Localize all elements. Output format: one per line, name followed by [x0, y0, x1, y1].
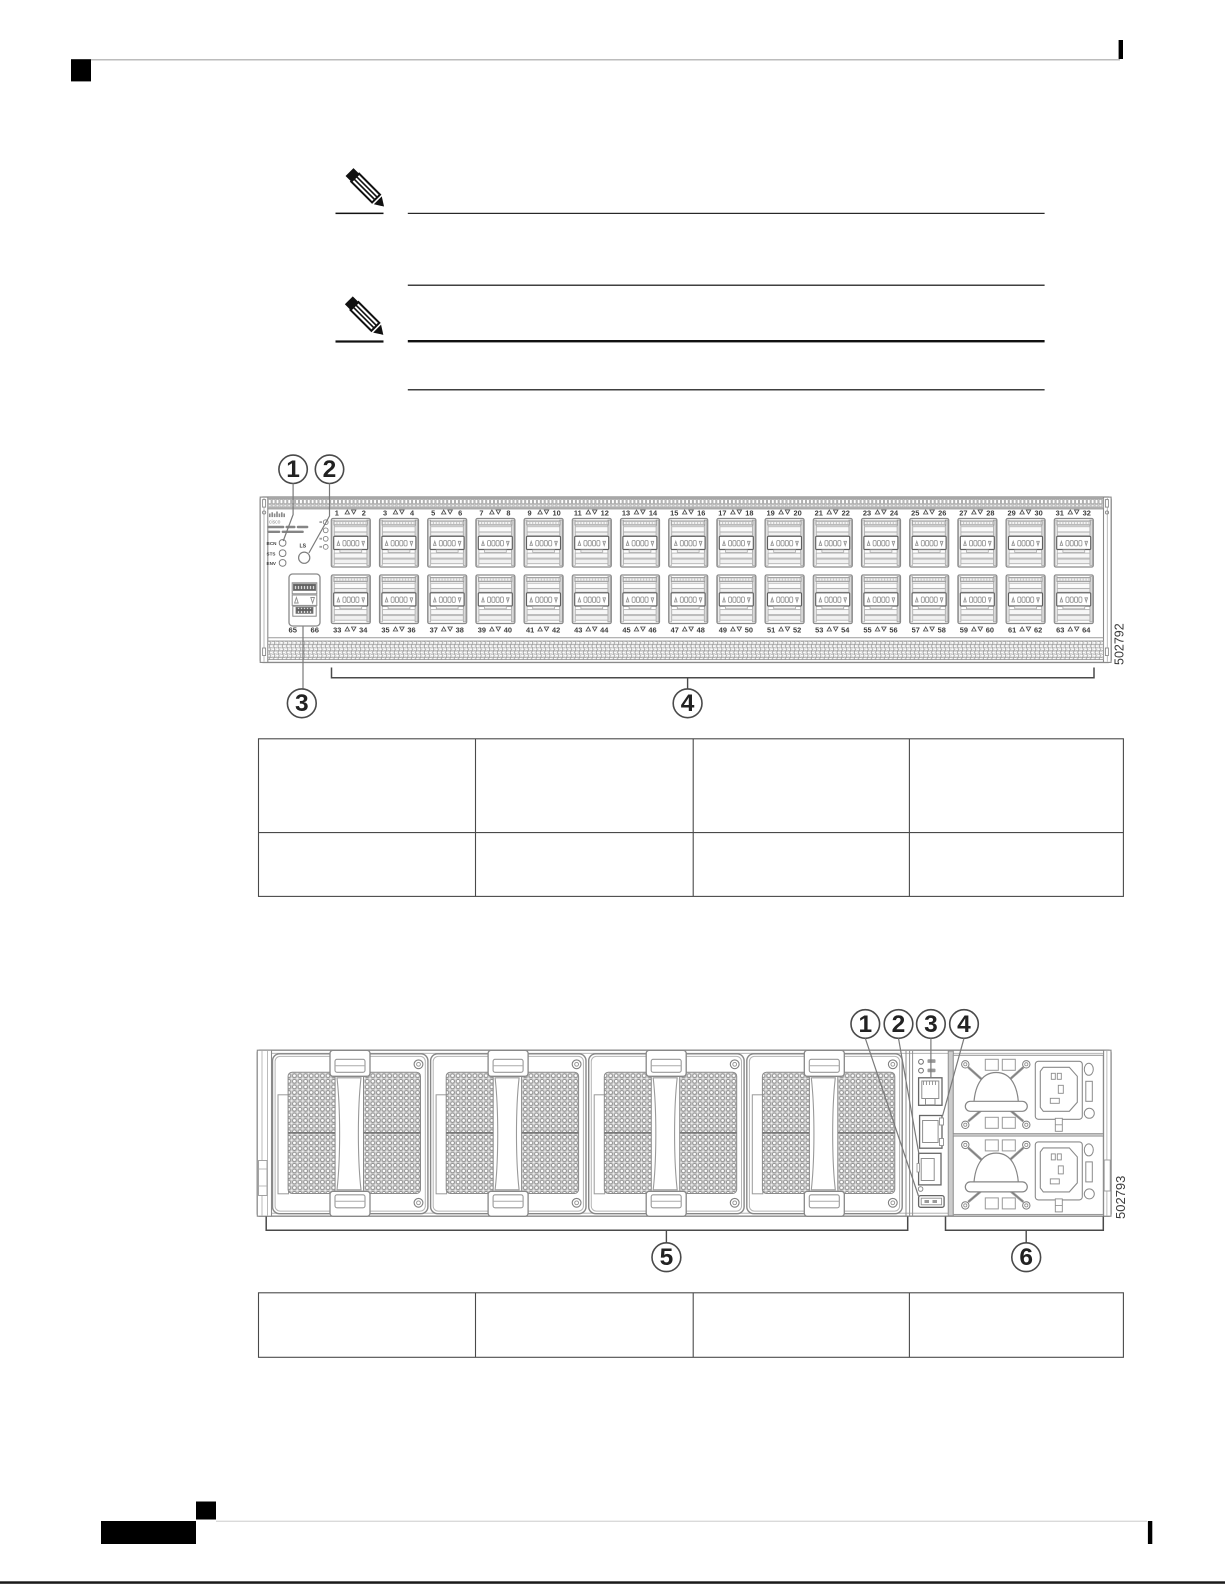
svg-text:48: 48 — [697, 626, 705, 635]
svg-text:53: 53 — [815, 626, 823, 635]
svg-text:15: 15 — [670, 508, 678, 517]
svg-text:4: 4 — [681, 690, 695, 717]
svg-text:37: 37 — [430, 626, 438, 635]
svg-text:20: 20 — [793, 508, 801, 517]
svg-text:41: 41 — [526, 626, 534, 635]
svg-text:LS: LS — [300, 544, 307, 550]
svg-text:25: 25 — [911, 508, 919, 517]
svg-text:2: 2 — [362, 508, 366, 517]
svg-text:27: 27 — [959, 508, 967, 517]
svg-text:cisco: cisco — [269, 519, 281, 525]
svg-text:65: 65 — [289, 626, 298, 635]
svg-text:14: 14 — [649, 508, 658, 517]
svg-text:8: 8 — [506, 508, 510, 517]
svg-text:19: 19 — [766, 508, 774, 517]
svg-text:59: 59 — [960, 626, 968, 635]
svg-text:7: 7 — [479, 508, 483, 517]
svg-text:16: 16 — [697, 508, 705, 517]
svg-text:44: 44 — [600, 626, 609, 635]
svg-text:BCN: BCN — [267, 541, 278, 546]
svg-text:1: 1 — [335, 508, 339, 517]
svg-text:42: 42 — [552, 626, 560, 635]
svg-text:63: 63 — [1056, 626, 1064, 635]
svg-text:54: 54 — [841, 626, 850, 635]
svg-text:55: 55 — [863, 626, 871, 635]
svg-text:56: 56 — [889, 626, 897, 635]
svg-text:57: 57 — [912, 626, 920, 635]
svg-text:30: 30 — [1034, 508, 1042, 517]
svg-text:1: 1 — [286, 456, 300, 483]
svg-text:6: 6 — [1019, 1244, 1033, 1271]
svg-text:2: 2 — [892, 1011, 906, 1038]
svg-text:10: 10 — [552, 508, 560, 517]
svg-text:39: 39 — [478, 626, 486, 635]
svg-text:34: 34 — [359, 626, 368, 635]
svg-text:45: 45 — [622, 626, 630, 635]
svg-text:3: 3 — [924, 1011, 938, 1038]
svg-text:1: 1 — [858, 1011, 872, 1038]
svg-text:502793: 502793 — [1113, 1176, 1128, 1219]
svg-text:60: 60 — [986, 626, 994, 635]
svg-text:3: 3 — [295, 690, 309, 717]
svg-text:502792: 502792 — [1113, 623, 1127, 665]
svg-text:STS: STS — [267, 552, 276, 557]
svg-text:35: 35 — [381, 626, 389, 635]
svg-text:22: 22 — [842, 508, 850, 517]
svg-text:51: 51 — [767, 626, 775, 635]
svg-text:5: 5 — [660, 1244, 674, 1271]
svg-text:18: 18 — [745, 508, 753, 517]
svg-text:61: 61 — [1008, 626, 1016, 635]
svg-text:29: 29 — [1007, 508, 1015, 517]
svg-text:24: 24 — [890, 508, 899, 517]
svg-text:26: 26 — [938, 508, 946, 517]
svg-text:31: 31 — [1056, 508, 1064, 517]
svg-text:4: 4 — [957, 1011, 971, 1038]
svg-text:23: 23 — [863, 508, 871, 517]
svg-text:46: 46 — [648, 626, 656, 635]
svg-text:33: 33 — [333, 626, 341, 635]
svg-text:49: 49 — [719, 626, 727, 635]
svg-text:47: 47 — [671, 626, 679, 635]
svg-text:32: 32 — [1083, 508, 1091, 517]
svg-text:21: 21 — [815, 508, 823, 517]
svg-text:38: 38 — [456, 626, 464, 635]
svg-text:43: 43 — [574, 626, 582, 635]
svg-text:13: 13 — [622, 508, 630, 517]
svg-text:17: 17 — [718, 508, 726, 517]
svg-text:5: 5 — [431, 508, 435, 517]
svg-text:40: 40 — [504, 626, 512, 635]
svg-text:28: 28 — [986, 508, 994, 517]
svg-text:64: 64 — [1082, 626, 1091, 635]
svg-text:11: 11 — [574, 508, 582, 517]
svg-text:66: 66 — [311, 626, 319, 635]
svg-text:3: 3 — [383, 508, 387, 517]
svg-text:2: 2 — [323, 456, 337, 483]
svg-text:62: 62 — [1034, 626, 1042, 635]
svg-text:52: 52 — [793, 626, 801, 635]
svg-text:58: 58 — [938, 626, 946, 635]
svg-text:36: 36 — [407, 626, 415, 635]
svg-text:ENV: ENV — [267, 561, 277, 566]
svg-text:6: 6 — [458, 508, 462, 517]
svg-text:12: 12 — [601, 508, 609, 517]
svg-text:9: 9 — [528, 508, 532, 517]
svg-text:50: 50 — [745, 626, 753, 635]
